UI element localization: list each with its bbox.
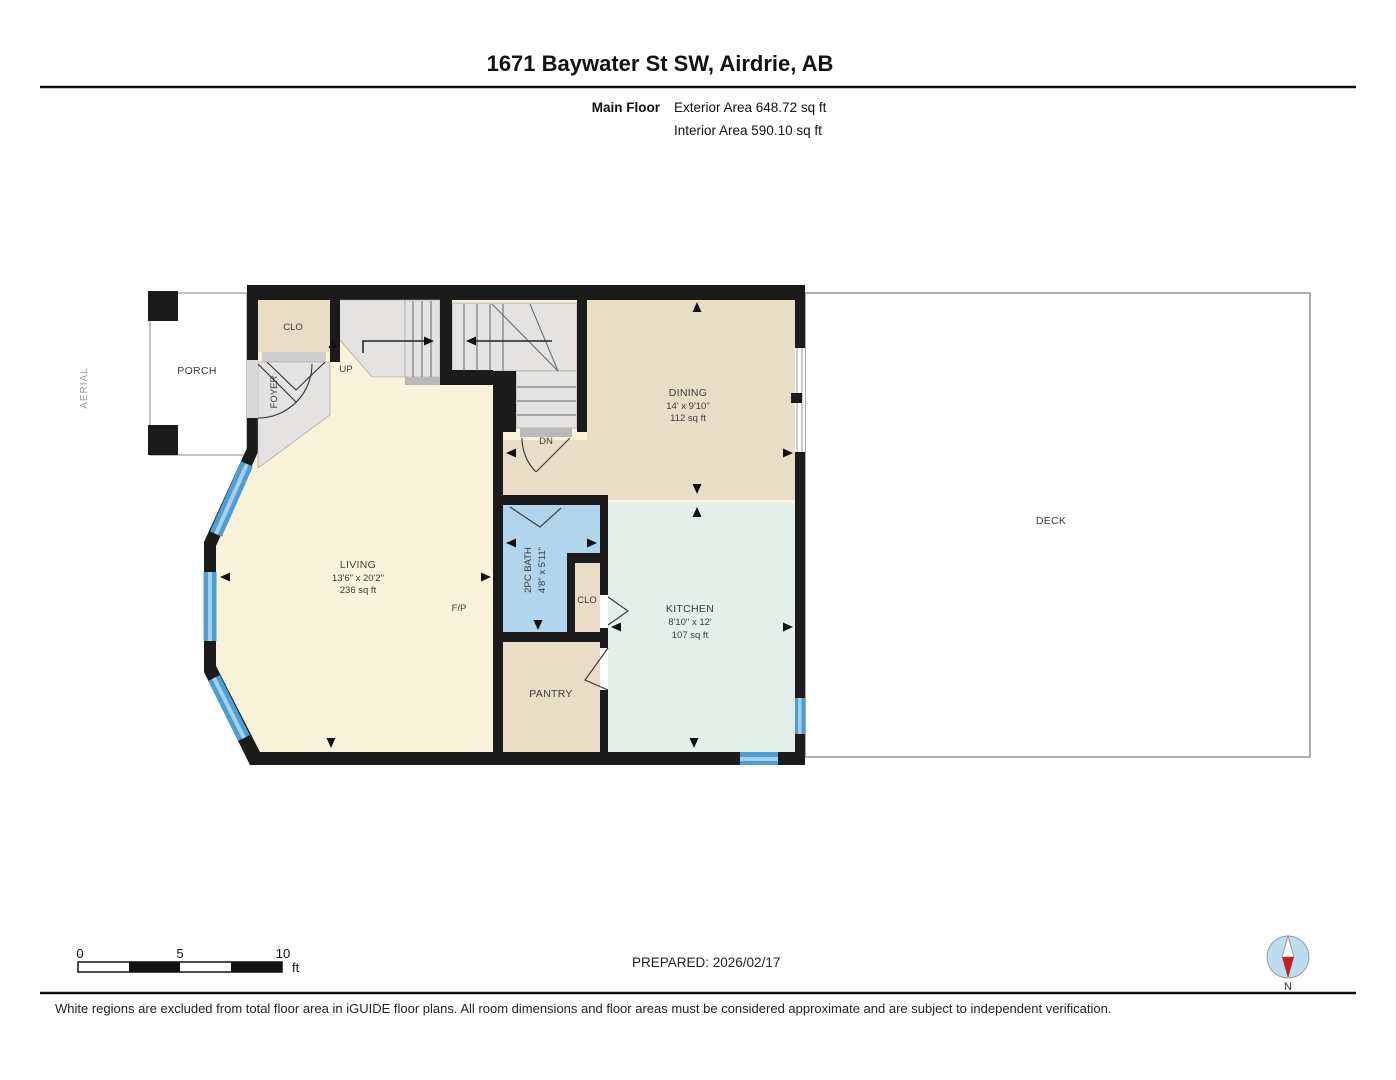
living-label: LIVING (340, 559, 376, 571)
page-title: 1671 Baywater St SW, Airdrie, AB (487, 51, 834, 76)
scale-bar-segment (231, 962, 282, 972)
floor-plan-page: 1671 Baywater St SW, Airdrie, AB Main Fl… (0, 0, 1396, 1080)
stairs-down-label: DN (539, 436, 553, 447)
pantry-label: PANTRY (529, 688, 572, 700)
dining-label: DINING (669, 387, 708, 399)
floor-label: Main Floor (592, 100, 661, 115)
interior-area: Interior Area 590.10 sq ft (674, 123, 822, 138)
scale-unit: ft (292, 960, 300, 975)
deck-label: DECK (1036, 515, 1066, 527)
fireplace-label: F/P (452, 603, 467, 614)
stairs-up-label: UP (339, 364, 352, 375)
stairs-down-upper (452, 303, 577, 371)
kitchen-dims: 8'10" x 12' (668, 617, 712, 628)
living-area: 236 sq ft (340, 585, 377, 596)
entry-closet-track (262, 352, 326, 362)
patio-door-handle (791, 393, 802, 403)
kitchen-area: 107 sq ft (672, 630, 709, 641)
scale-bar: 0 5 10 ft (76, 946, 299, 975)
header: 1671 Baywater St SW, Airdrie, AB Main Fl… (40, 51, 1356, 138)
porch-label: PORCH (177, 365, 216, 377)
stairs-down-lower (516, 371, 577, 428)
compass: N (1267, 936, 1309, 993)
floor-plan-canvas: 1671 Baywater St SW, Airdrie, AB Main Fl… (0, 0, 1396, 1080)
kitchen-closet-label: CLO (577, 595, 597, 606)
house: CLO FOYER UP DN DINING 14' x 9'10" 112 s… (204, 285, 805, 765)
aerial-label: AERIAL (79, 367, 90, 409)
kitchen-label: KITCHEN (666, 603, 714, 615)
bath-label: 2PC BATH (523, 547, 534, 593)
prepared-date: PREPARED: 2026/02/17 (632, 955, 780, 970)
scale-bar-segment (129, 962, 180, 972)
scale-tick-10: 10 (276, 946, 290, 961)
porch-post-bottom (148, 425, 178, 455)
footer: PREPARED: 2026/02/17 N White regions are… (40, 936, 1356, 1016)
living-dims: 13'6" x 20'2" (332, 573, 384, 584)
deck: DECK (805, 293, 1310, 757)
front-door-opening (247, 360, 258, 418)
foyer-label: FOYER (269, 376, 280, 409)
kitchen-closet-opening (600, 595, 608, 628)
exterior-area: Exterior Area 648.72 sq ft (674, 100, 827, 115)
disclaimer-text: White regions are excluded from total fl… (55, 1001, 1111, 1016)
scale-tick-0: 0 (76, 946, 83, 961)
porch: PORCH (148, 291, 247, 455)
scale-tick-5: 5 (176, 946, 183, 961)
stairs-up-threshold (405, 377, 440, 385)
dining-dims: 14' x 9'10" (666, 401, 709, 412)
bath-dims: 4'8" x 5'11" (537, 547, 548, 593)
compass-label: N (1284, 981, 1292, 993)
dining-area: 112 sq ft (670, 413, 706, 424)
porch-post-top (148, 291, 178, 321)
entry-closet-label: CLO (283, 322, 303, 333)
